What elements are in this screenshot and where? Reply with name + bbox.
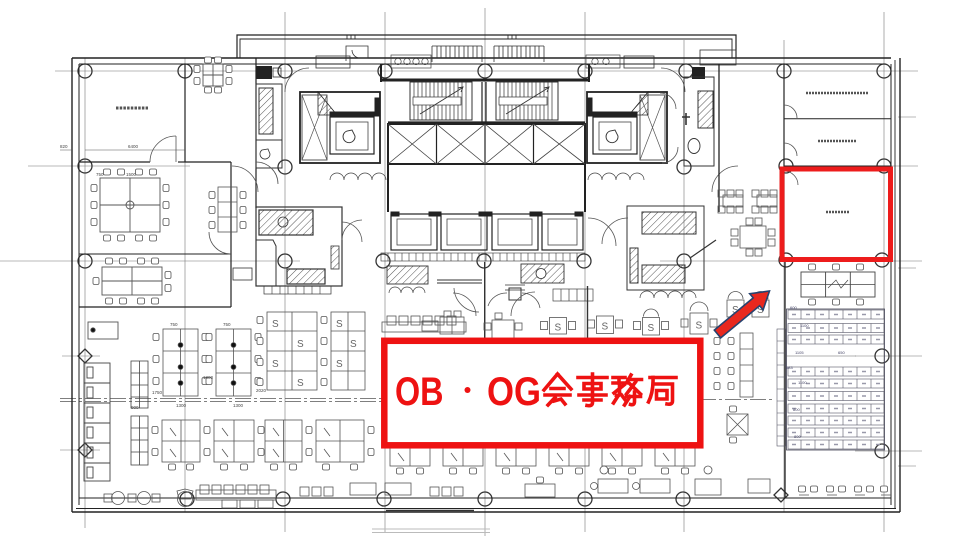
svg-text:OB: OB [395, 370, 444, 414]
svg-text:750: 750 [96, 172, 104, 177]
svg-text:750: 750 [170, 322, 178, 327]
svg-text:S: S [696, 321, 703, 332]
svg-text:1105: 1105 [795, 350, 804, 355]
svg-text:2020: 2020 [256, 388, 267, 393]
svg-text:1100: 1100 [798, 380, 807, 385]
svg-text:600: 600 [790, 305, 797, 310]
svg-text:S: S [602, 322, 609, 333]
svg-text:900: 900 [131, 405, 139, 410]
svg-text:OG: OG [487, 370, 541, 414]
svg-text:S: S [297, 339, 304, 350]
svg-text:S: S [336, 319, 343, 330]
svg-text:800: 800 [794, 434, 801, 439]
svg-text:S: S [350, 339, 357, 350]
svg-text:1100: 1100 [800, 323, 809, 328]
svg-text:1300: 1300 [233, 403, 244, 408]
svg-text:6400: 6400 [128, 144, 139, 149]
svg-text:S: S [297, 378, 304, 389]
svg-text:S: S [272, 359, 279, 370]
svg-text:1500: 1500 [126, 172, 137, 177]
svg-text:650: 650 [838, 350, 845, 355]
svg-text:820: 820 [60, 144, 68, 149]
svg-text:S: S [555, 323, 562, 334]
svg-text:883: 883 [786, 365, 793, 370]
svg-text:S: S [272, 319, 279, 330]
svg-text:750: 750 [223, 322, 231, 327]
svg-text:1300: 1300 [176, 403, 187, 408]
svg-text:1800: 1800 [203, 375, 214, 380]
svg-text:800: 800 [793, 407, 800, 412]
svg-text:1750: 1750 [152, 390, 163, 395]
svg-text:S: S [336, 359, 343, 370]
svg-text:S: S [648, 323, 655, 334]
